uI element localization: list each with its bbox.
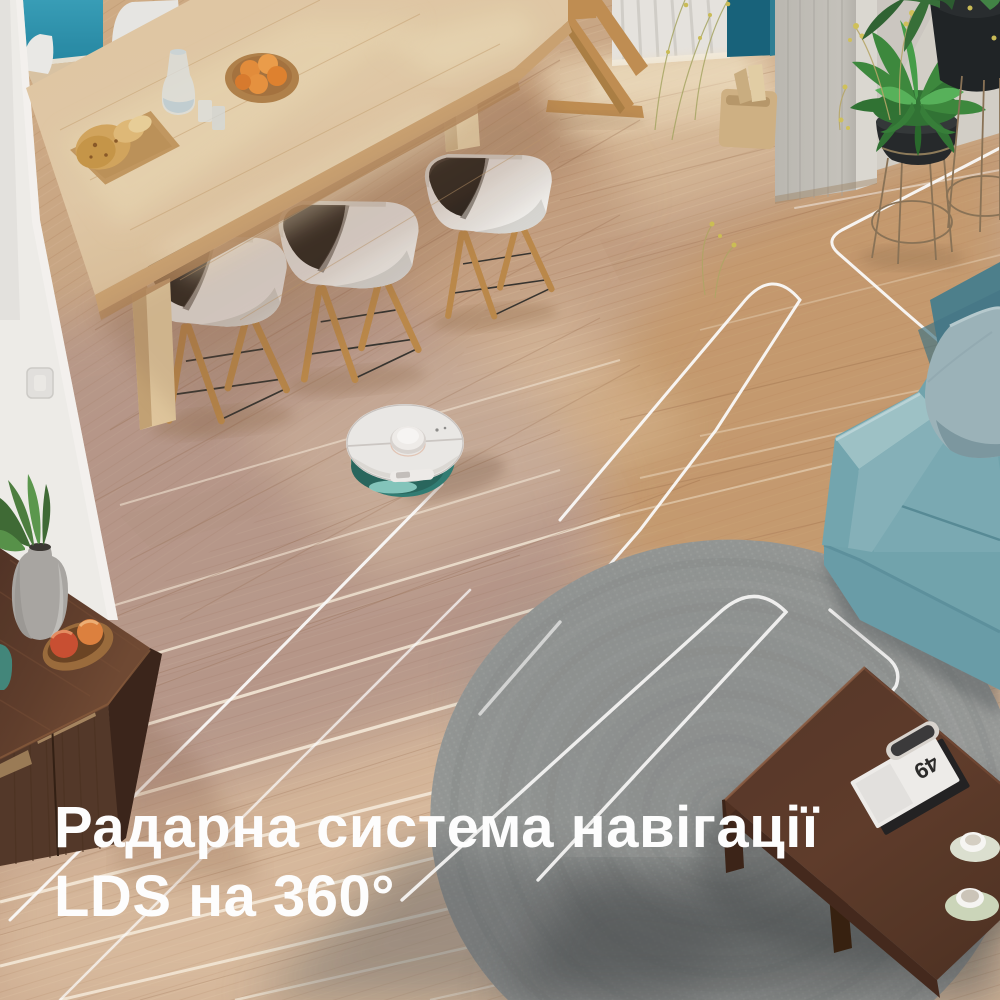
svg-text:Радарна система навігації: Радарна система навігації	[54, 795, 820, 860]
svg-text:LDS на 360°: LDS на 360°	[54, 864, 395, 929]
